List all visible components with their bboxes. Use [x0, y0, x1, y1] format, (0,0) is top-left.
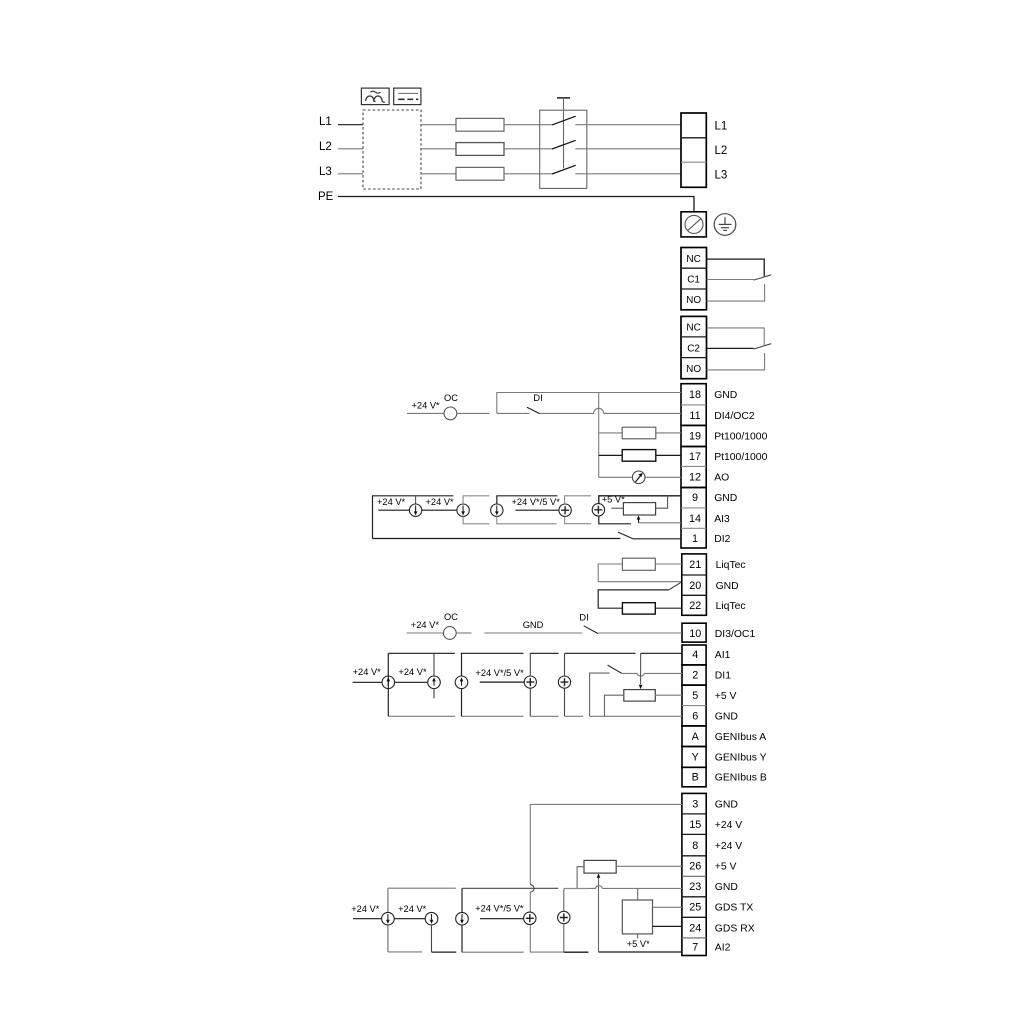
svg-text:20: 20: [689, 580, 701, 592]
svg-text:C1: C1: [687, 275, 700, 286]
svg-text:NO: NO: [686, 364, 701, 375]
svg-text:DI2: DI2: [714, 534, 730, 545]
svg-text:OC: OC: [444, 612, 458, 622]
svg-text:+24 V*/5 V*: +24 V*/5 V*: [475, 668, 524, 678]
svg-text:9: 9: [692, 492, 698, 504]
svg-text:GDS TX: GDS TX: [715, 903, 754, 914]
svg-text:12: 12: [689, 472, 701, 484]
svg-text:15: 15: [689, 819, 701, 831]
svg-text:18: 18: [689, 389, 701, 401]
svg-text:C2: C2: [687, 343, 700, 354]
svg-text:4: 4: [692, 649, 698, 661]
svg-text:+24 V*: +24 V*: [412, 401, 441, 411]
svg-text:GDS RX: GDS RX: [715, 923, 755, 934]
svg-text:NC: NC: [686, 323, 700, 334]
svg-text:5: 5: [692, 690, 698, 702]
svg-text:L3: L3: [319, 166, 332, 178]
svg-text:DI1: DI1: [715, 671, 731, 682]
svg-text:+5 V*: +5 V*: [602, 495, 625, 505]
svg-text:+5 V: +5 V: [715, 862, 737, 873]
svg-text:17: 17: [689, 451, 701, 463]
svg-text:L1: L1: [715, 120, 728, 132]
svg-text:GND: GND: [714, 493, 737, 504]
svg-text:B: B: [692, 772, 699, 784]
svg-text:19: 19: [689, 430, 701, 442]
svg-text:GENIbus Y: GENIbus Y: [715, 753, 767, 764]
svg-text:+24 V*: +24 V*: [411, 620, 440, 630]
svg-text:+24 V*: +24 V*: [353, 667, 382, 677]
svg-text:+24 V*: +24 V*: [426, 497, 455, 507]
svg-text:DI4/OC2: DI4/OC2: [714, 411, 755, 422]
svg-text:OC: OC: [444, 393, 458, 403]
svg-text:6: 6: [692, 711, 698, 723]
svg-text:+24 V: +24 V: [715, 841, 743, 852]
svg-text:21: 21: [689, 559, 701, 571]
svg-text:GND: GND: [523, 620, 544, 630]
svg-text:1: 1: [692, 533, 698, 545]
svg-text:2: 2: [692, 670, 698, 682]
svg-text:GENIbus B: GENIbus B: [715, 773, 767, 784]
svg-text:L2: L2: [715, 145, 728, 157]
svg-text:+24 V*: +24 V*: [398, 667, 427, 677]
svg-text:DI: DI: [579, 613, 588, 623]
svg-text:AI1: AI1: [715, 650, 731, 661]
svg-text:AO: AO: [714, 473, 729, 484]
svg-text:AI3: AI3: [714, 514, 730, 525]
svg-text:A: A: [692, 731, 700, 743]
svg-text:3: 3: [692, 798, 698, 810]
svg-text:14: 14: [689, 513, 701, 525]
svg-text:25: 25: [689, 902, 701, 914]
svg-text:PE: PE: [318, 191, 334, 203]
svg-text:GND: GND: [714, 390, 737, 401]
svg-text:22: 22: [689, 600, 701, 612]
svg-text:+24 V*: +24 V*: [398, 904, 427, 914]
svg-text:26: 26: [689, 861, 701, 873]
svg-text:DI3/OC1: DI3/OC1: [715, 629, 756, 640]
svg-text:+24 V*/5 V*: +24 V*/5 V*: [512, 497, 561, 507]
svg-text:+24 V: +24 V: [715, 820, 743, 831]
svg-text:NO: NO: [686, 295, 701, 306]
svg-text:L1: L1: [319, 116, 332, 128]
svg-text:Y: Y: [692, 752, 699, 764]
svg-text:L2: L2: [319, 141, 332, 153]
svg-text:LiqTec: LiqTec: [716, 601, 746, 612]
svg-text:11: 11: [689, 410, 700, 422]
svg-text:+24 V*: +24 V*: [351, 904, 380, 914]
svg-text:23: 23: [689, 881, 701, 893]
svg-text:Pt100/1000: Pt100/1000: [714, 431, 767, 442]
svg-text:DI: DI: [533, 393, 542, 403]
svg-text:LiqTec: LiqTec: [716, 560, 746, 571]
svg-text:+5 V: +5 V: [715, 691, 737, 702]
svg-text:+5 V*: +5 V*: [627, 939, 650, 949]
svg-text:7: 7: [692, 941, 698, 953]
svg-text:NC: NC: [686, 254, 700, 265]
svg-text:8: 8: [692, 840, 698, 852]
svg-text:AI2: AI2: [715, 942, 731, 953]
svg-text:GND: GND: [715, 799, 738, 810]
svg-text:GND: GND: [715, 882, 738, 893]
svg-text:L3: L3: [715, 169, 728, 181]
svg-text:GND: GND: [716, 581, 739, 592]
svg-text:Pt100/1000: Pt100/1000: [714, 452, 767, 463]
svg-text:+24 V*/5 V*: +24 V*/5 V*: [475, 904, 524, 914]
svg-text:GENIbus A: GENIbus A: [715, 732, 766, 743]
svg-text:+24 V*: +24 V*: [377, 497, 406, 507]
svg-text:10: 10: [689, 628, 701, 640]
svg-text:24: 24: [689, 922, 701, 934]
svg-text:GND: GND: [715, 712, 738, 723]
